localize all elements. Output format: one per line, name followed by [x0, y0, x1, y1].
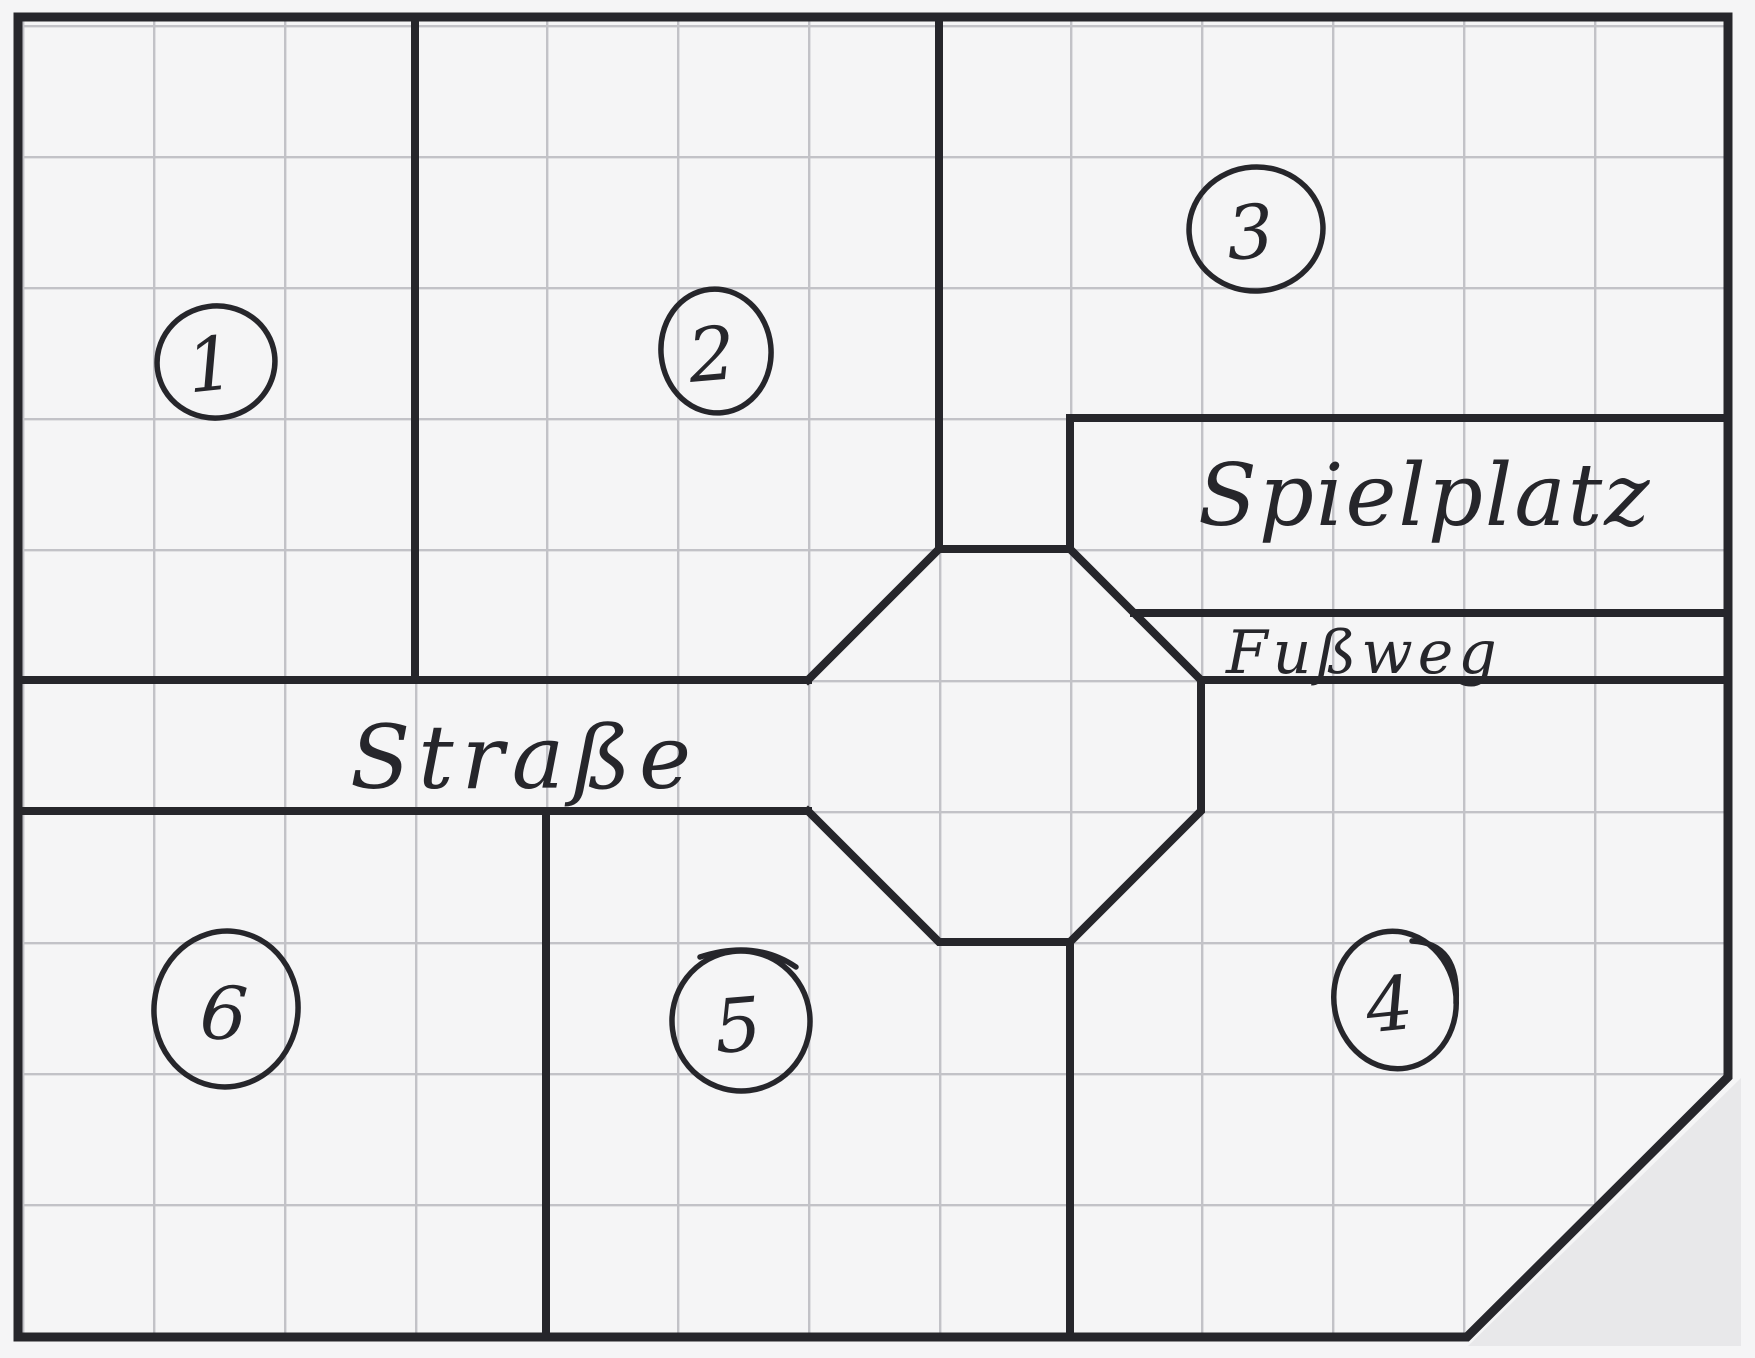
street-label: Straße	[350, 706, 699, 809]
plot1-number: 1	[182, 320, 238, 410]
footpath-label: Fußweg	[1225, 618, 1502, 688]
plot6-number: 6	[197, 970, 250, 1059]
plot5-number: 5	[711, 981, 765, 1071]
map-canvas: 1 2 3 4 5 6 Straße Spielplatz Fußweg	[0, 0, 1755, 1358]
playground-label: Spielplatz	[1198, 446, 1652, 546]
plot3-number: 3	[1224, 189, 1277, 278]
sketch-map-page: 1 2 3 4 5 6 Straße Spielplatz Fußweg	[0, 0, 1755, 1358]
plot2-number: 2	[684, 310, 739, 400]
plot4-number: 4	[1360, 960, 1417, 1051]
